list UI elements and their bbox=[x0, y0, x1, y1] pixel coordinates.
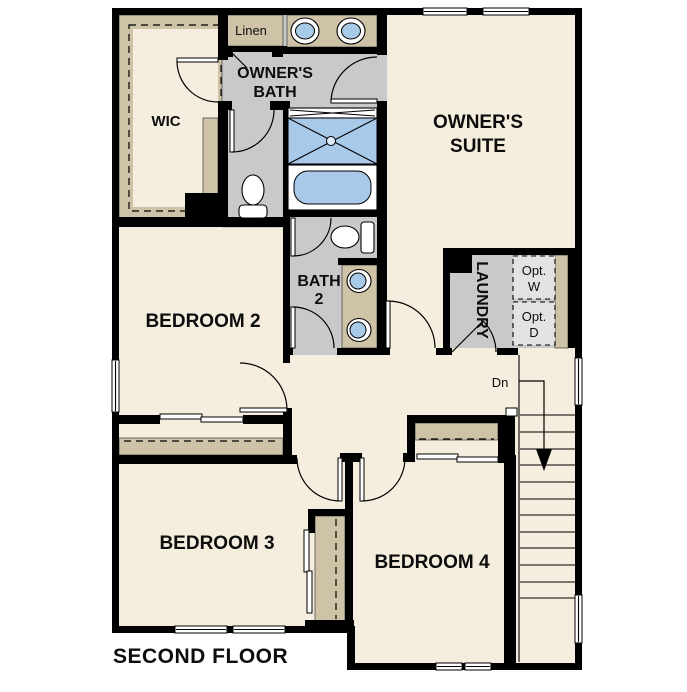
room-label-owners-bath-1: OWNER'S bbox=[237, 65, 313, 82]
room-label-owners-suite-1: OWNER'S bbox=[433, 112, 523, 133]
sink-basin bbox=[350, 273, 366, 289]
bedroom3-closet-shelf bbox=[315, 516, 345, 622]
wall-segment bbox=[283, 47, 387, 54]
shower-drain-icon bbox=[327, 137, 336, 146]
wall-segment bbox=[218, 101, 232, 110]
wall-segment bbox=[305, 620, 354, 628]
floor-title: SECOND FLOOR bbox=[113, 645, 288, 668]
sliding-door bbox=[307, 571, 312, 613]
wall-segment bbox=[112, 8, 119, 633]
floorplan-drawing: WIC Linen OWNER'S BATH OWNER'S SUITE BED… bbox=[0, 0, 687, 687]
wall-segment bbox=[407, 415, 498, 423]
wall-segment bbox=[337, 348, 390, 355]
floorplan-page: WIC Linen OWNER'S BATH OWNER'S SUITE BED… bbox=[0, 0, 687, 687]
opt-washer-label-1: Opt. bbox=[522, 263, 547, 278]
door-leaf bbox=[291, 218, 295, 256]
tub-basin bbox=[294, 171, 371, 204]
door-leaf bbox=[240, 408, 287, 412]
wall-segment bbox=[283, 210, 387, 217]
wall-segment bbox=[272, 46, 283, 57]
toilet-bowl bbox=[331, 226, 359, 248]
bathtub-fixture bbox=[288, 165, 377, 210]
bedroom4-closet-shelf bbox=[415, 423, 498, 440]
sliding-door bbox=[304, 530, 309, 572]
toilet-tank bbox=[239, 205, 267, 218]
room-label-owners-bath-2: BATH bbox=[253, 84, 296, 101]
room-label-linen: Linen bbox=[235, 23, 267, 38]
wall-segment bbox=[338, 258, 377, 265]
sink-basin bbox=[296, 23, 315, 39]
room-label-bedroom3: BEDROOM 3 bbox=[159, 533, 274, 554]
sink-basin bbox=[350, 322, 366, 338]
wall-segment bbox=[504, 455, 516, 665]
room-label-wic: WIC bbox=[151, 113, 180, 130]
room-label-bath2-1: BATH bbox=[297, 273, 340, 290]
door-leaf bbox=[360, 458, 364, 501]
wall-segment bbox=[222, 46, 233, 57]
wall-segment bbox=[575, 8, 582, 670]
wall-segment bbox=[345, 458, 353, 628]
wall-segment bbox=[377, 15, 387, 55]
room-label-owners-suite-2: SUITE bbox=[450, 136, 506, 157]
wall-segment bbox=[568, 255, 575, 348]
opt-washer-label-2: W bbox=[528, 279, 541, 294]
opt-dryer-label-1: Opt. bbox=[522, 309, 547, 324]
door-leaf bbox=[331, 99, 377, 103]
room-label-bedroom2: BEDROOM 2 bbox=[145, 311, 260, 332]
wall-segment bbox=[243, 415, 290, 424]
wall-segment bbox=[283, 348, 293, 355]
wall-segment bbox=[112, 455, 297, 464]
room-label-bath2-2: 2 bbox=[315, 291, 324, 308]
door-leaf bbox=[386, 301, 390, 348]
opt-dryer-label-2: D bbox=[529, 325, 538, 340]
sliding-door bbox=[417, 454, 458, 459]
door-leaf bbox=[230, 110, 234, 152]
sliding-door bbox=[160, 414, 202, 419]
toilet-tank bbox=[361, 222, 374, 253]
toilet-bowl bbox=[242, 175, 264, 205]
room-label-bedroom4: BEDROOM 4 bbox=[374, 552, 490, 573]
door-leaf bbox=[291, 307, 295, 348]
room-label-laundry: LAUNDRY bbox=[473, 261, 490, 339]
stairs-down-label: Dn bbox=[492, 375, 509, 390]
wall-segment bbox=[443, 248, 450, 355]
wall-segment bbox=[497, 348, 518, 355]
sliding-door bbox=[457, 457, 498, 462]
wall-segment bbox=[283, 217, 290, 363]
door-leaf bbox=[177, 58, 218, 62]
wall-segment bbox=[112, 415, 160, 424]
sink-basin bbox=[342, 23, 361, 39]
sliding-door bbox=[201, 417, 243, 422]
wall-segment bbox=[308, 509, 315, 533]
wall-segment bbox=[347, 626, 355, 670]
stair-newel bbox=[506, 408, 517, 416]
laundry-counter-strip bbox=[555, 255, 568, 348]
door-leaf bbox=[338, 458, 342, 501]
shower-fixture bbox=[288, 108, 377, 164]
